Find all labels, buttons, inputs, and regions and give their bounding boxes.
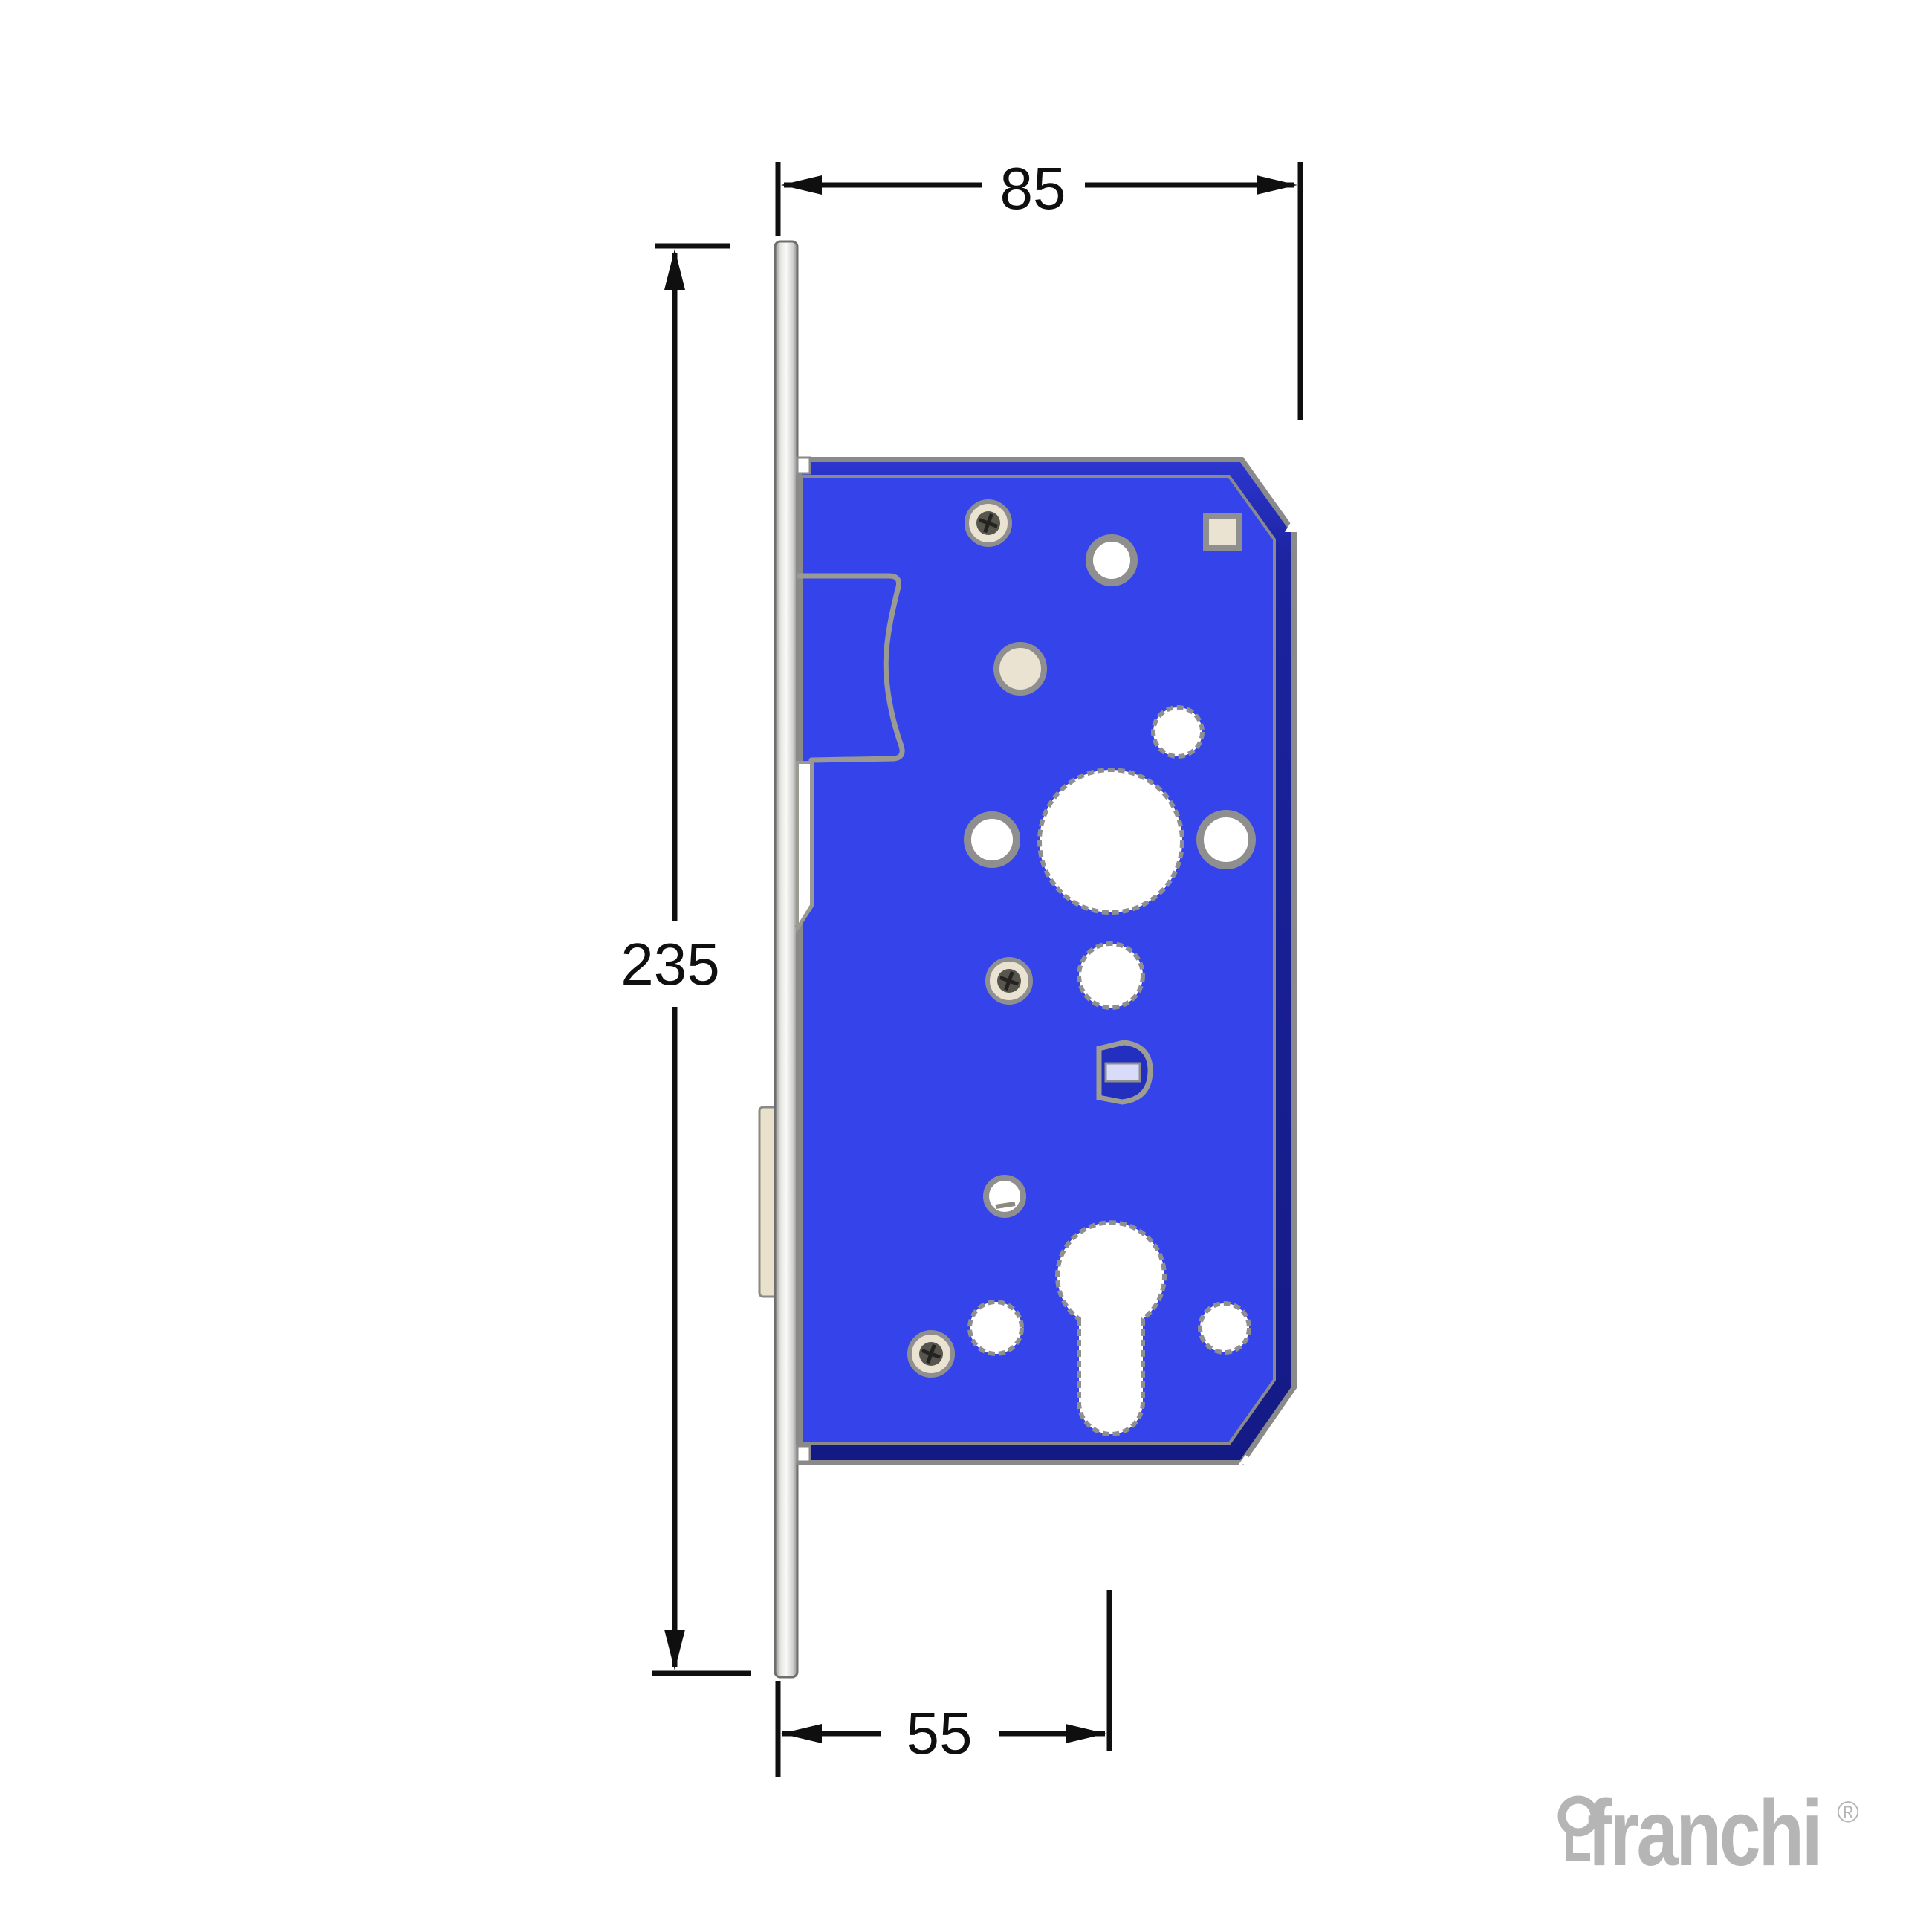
handle-follower-hole (1040, 770, 1182, 912)
fixing-hole-left (967, 815, 1017, 864)
dimension-label-55: 55 (907, 1700, 973, 1766)
keyed-hole (986, 1178, 1023, 1215)
spindle-square-hole (1206, 516, 1239, 548)
faceplate (775, 241, 797, 1677)
dimension-backset: 55 (778, 1590, 1109, 1777)
hole-below-follower (1079, 944, 1143, 1008)
pin-hole-top (1089, 538, 1134, 583)
dimension-body-depth: 85 (778, 155, 1300, 420)
arrow-up-icon (664, 249, 685, 290)
registered-mark: ® (1837, 1796, 1858, 1829)
keyed-hole-notch (996, 1204, 1015, 1207)
retainer-clip (1099, 1043, 1150, 1102)
arrow-left-icon (781, 175, 822, 195)
retainer-clip-band (1106, 1063, 1140, 1081)
corner-notch-bottom (797, 1446, 810, 1462)
arrow-left-icon (781, 1724, 822, 1743)
screw-icon-middle (988, 959, 1031, 1002)
brand-name: franchi (1587, 1781, 1821, 1885)
dimension-label-85: 85 (1000, 155, 1066, 221)
screw-icon-top (967, 502, 1010, 545)
technical-drawing: 85 235 55 franchi ® (0, 0, 1932, 1932)
lock-drawing-canvas: 85 235 55 franchi ® (0, 0, 1932, 1932)
keyed-hole-ring (986, 1178, 1023, 1215)
dimension-faceplate-length: 235 (620, 246, 751, 1673)
small-hole-lower-right (1200, 1303, 1249, 1352)
latch-cutout (797, 762, 811, 928)
arrow-down-icon (664, 1630, 685, 1670)
arrow-right-icon (1257, 175, 1297, 195)
lock-body-face (802, 476, 1274, 1444)
fixing-hole-right (1200, 814, 1252, 866)
dimension-label-235: 235 (620, 931, 719, 997)
arrow-right-icon (1066, 1724, 1106, 1743)
small-hole-upper-right (1153, 707, 1202, 756)
corner-notch-top (797, 458, 810, 473)
small-hole-lower-left (970, 1302, 1022, 1354)
screw-icon-bottom (910, 1332, 953, 1375)
brand-logo: franchi ® (1562, 1781, 1859, 1885)
plugged-hole (996, 645, 1044, 693)
